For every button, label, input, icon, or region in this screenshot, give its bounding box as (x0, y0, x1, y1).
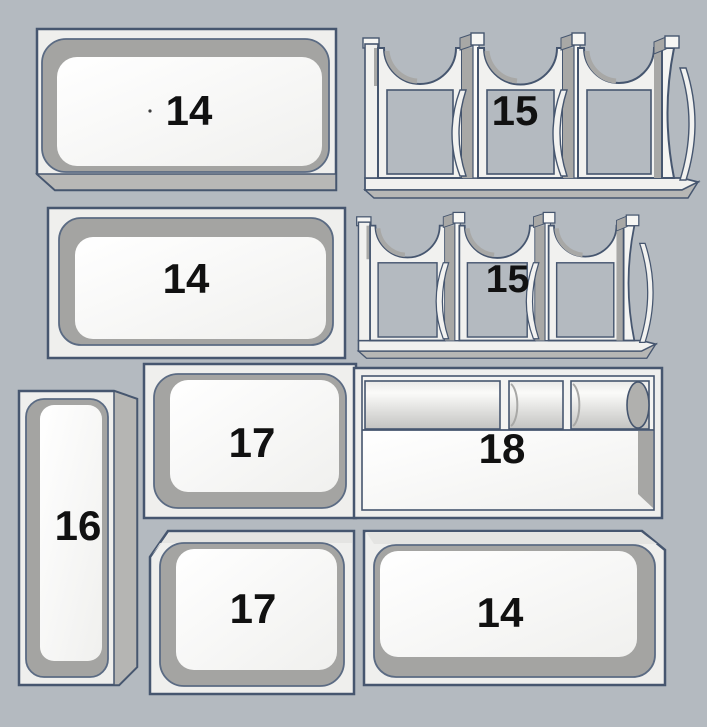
tray-side-face (114, 391, 137, 685)
organizer-parts-canvas: 14 (0, 0, 707, 727)
cradle-bay (549, 226, 622, 341)
cylinder (509, 381, 563, 429)
cylinder-end-cap (627, 382, 649, 428)
part-label: 17 (230, 585, 277, 632)
part-label: 14 (163, 255, 210, 302)
part-label: 14 (477, 589, 524, 636)
tray-17-lower-render: 17 (148, 528, 356, 697)
tray-14-middle-left-render: 14 (46, 206, 347, 360)
cradle-bay (578, 48, 660, 178)
part-tray-14-middle-left[interactable]: 14 (46, 206, 347, 360)
part-label: 16 (55, 502, 102, 549)
bay-window (587, 90, 651, 174)
part-tray-14-top-left[interactable]: 14 (35, 27, 338, 193)
part-label: 18 (479, 425, 526, 472)
left-rail (363, 38, 379, 178)
cylinder (571, 381, 649, 429)
cylinder (365, 381, 500, 429)
bay-window (557, 263, 614, 337)
tray-14-bottom-right-render: 14 (362, 528, 667, 688)
part-holder-15-middle-right[interactable]: 15 (354, 208, 662, 360)
part-tray-18-cylinders[interactable]: 18 (352, 366, 664, 520)
part-tray-17-lower[interactable]: 17 (148, 528, 356, 697)
tray-front-face (37, 174, 336, 190)
bay-window (387, 90, 453, 174)
holder-15-top-right-render: 15 (360, 28, 705, 200)
left-rail (357, 217, 371, 341)
end-plate (654, 36, 695, 180)
part-tray-16-tall-left[interactable]: 16 (16, 384, 140, 690)
holder-15-middle-right-render: 15 (354, 208, 662, 360)
tray-17-upper-render: 17 (142, 362, 358, 520)
cradle-bay (378, 48, 462, 178)
tray-14-top-left-render: 14 (35, 27, 338, 193)
tray-top-face (366, 532, 657, 544)
bay-window (378, 263, 437, 337)
tray-18-cylinders-render: 18 (352, 366, 664, 520)
end-plate (616, 215, 653, 342)
base-strip (365, 178, 698, 198)
part-label: 17 (229, 419, 276, 466)
part-holder-15-top-right[interactable]: 15 (360, 28, 705, 200)
part-tray-17-upper[interactable]: 17 (142, 362, 358, 520)
part-tray-14-bottom-right[interactable]: 14 (362, 528, 667, 688)
part-label: 14 (166, 87, 213, 134)
part-label: 15 (486, 258, 530, 301)
speck (148, 109, 151, 112)
cradle-bay (370, 226, 445, 341)
base-strip (358, 341, 655, 359)
part-label: 15 (492, 87, 539, 134)
tray-16-tall-left-render: 16 (16, 384, 140, 690)
